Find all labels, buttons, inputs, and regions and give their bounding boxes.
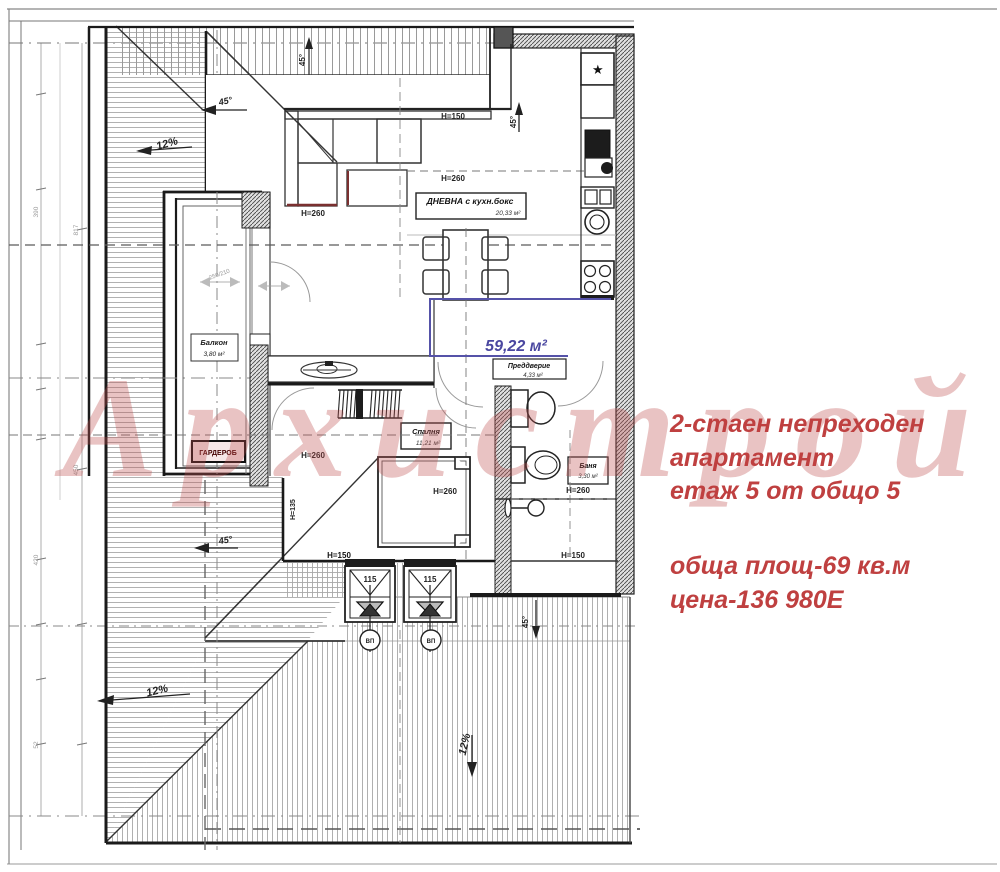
svg-text:115: 115 (424, 575, 437, 584)
svg-text:ДНЕВНА с кухн.бокс: ДНЕВНА с кухн.бокс (426, 196, 514, 206)
svg-text:Н=150: Н=150 (441, 112, 465, 121)
svg-text:ВП: ВП (366, 639, 375, 645)
svg-text:20,33 м²: 20,33 м² (495, 210, 522, 217)
svg-text:45°: 45° (298, 54, 307, 66)
svg-text:Н=150: Н=150 (561, 551, 585, 560)
svg-text:45°: 45° (509, 116, 518, 128)
svg-text:420: 420 (33, 554, 40, 565)
svg-text:45°: 45° (521, 616, 530, 628)
svg-text:390: 390 (33, 206, 40, 217)
svg-text:Н=260: Н=260 (301, 209, 325, 218)
svg-text:ВП: ВП (427, 639, 436, 645)
svg-text:52: 52 (33, 741, 40, 749)
svg-text:817: 817 (73, 224, 80, 235)
svg-text:Н=260: Н=260 (441, 174, 465, 183)
svg-text:115: 115 (364, 575, 377, 584)
svg-text:Н=150: Н=150 (327, 551, 351, 560)
svg-text:★: ★ (592, 62, 604, 77)
